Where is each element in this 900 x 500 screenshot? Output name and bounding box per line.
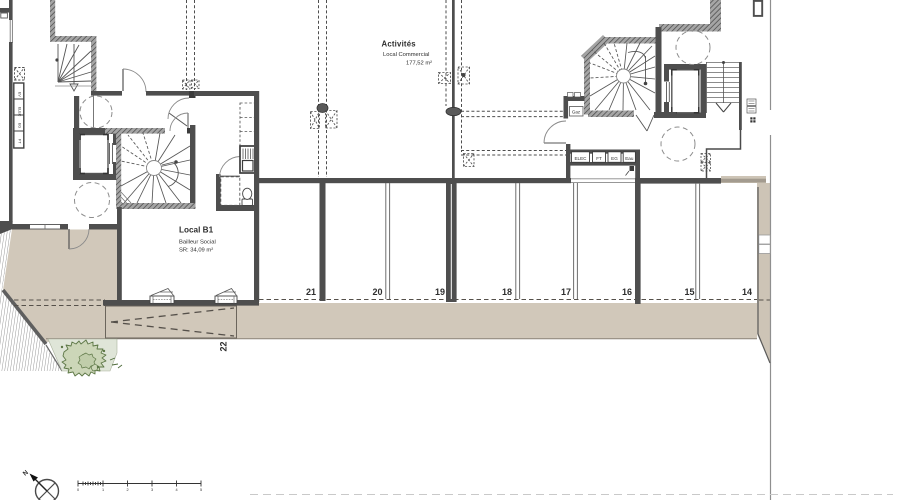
svg-text:ELEC: ELEC — [18, 107, 22, 117]
svg-text:18: 18 — [502, 287, 512, 297]
svg-text:4: 4 — [175, 488, 177, 492]
svg-text:2: 2 — [126, 488, 128, 492]
svg-text:19: 19 — [435, 287, 445, 297]
svg-text:Bailleur Social: Bailleur Social — [179, 240, 216, 246]
svg-text:Activités: Activités — [382, 40, 417, 49]
svg-text:15: 15 — [684, 287, 694, 297]
svg-text:FT: FT — [596, 156, 602, 161]
svg-text:EG: EG — [611, 156, 618, 161]
svg-text:Local B1: Local B1 — [179, 226, 214, 235]
svg-text:Eau: Eau — [625, 156, 634, 161]
svg-text:16: 16 — [622, 287, 632, 297]
svg-text:17: 17 — [561, 287, 571, 297]
svg-text:3: 3 — [151, 488, 153, 492]
svg-text:177,52 m²: 177,52 m² — [406, 61, 432, 67]
svg-text:EG: EG — [18, 123, 22, 128]
svg-text:20: 20 — [372, 287, 382, 297]
svg-text:22: 22 — [219, 341, 229, 351]
svg-text:21: 21 — [306, 287, 316, 297]
svg-text:Local Commercial: Local Commercial — [383, 52, 429, 58]
svg-text:Gaz: Gaz — [572, 110, 581, 115]
svg-text:1: 1 — [102, 488, 104, 492]
svg-text:0: 0 — [77, 488, 79, 492]
svg-text:5: 5 — [200, 488, 202, 492]
svg-text:ELEC: ELEC — [574, 156, 587, 161]
svg-text:SR: 34,09 m²: SR: 34,09 m² — [179, 248, 213, 254]
svg-text:EV: EV — [18, 92, 22, 97]
svg-text:14: 14 — [742, 287, 752, 297]
